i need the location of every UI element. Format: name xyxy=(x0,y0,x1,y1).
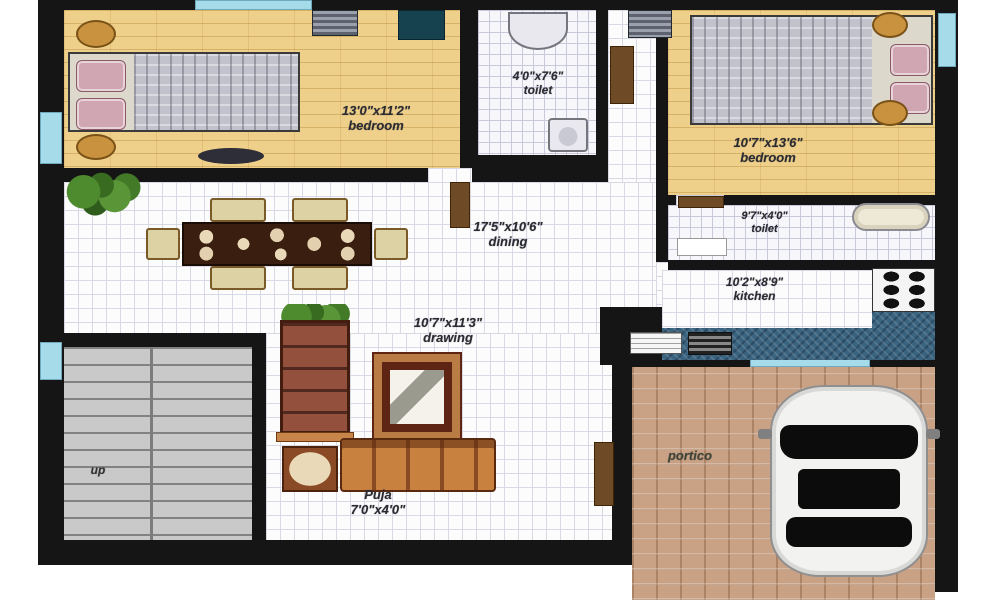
room-dims: 10'2"x8'9" xyxy=(682,276,827,290)
bookshelf xyxy=(280,320,350,434)
staircase-rail xyxy=(150,347,153,540)
kitchen-sink xyxy=(630,332,682,354)
room-name: toilet xyxy=(482,84,594,98)
room-dims: 7'0"x4'0" xyxy=(300,503,456,518)
sofa xyxy=(340,438,496,492)
dining-chair xyxy=(210,198,266,222)
toilet-seat xyxy=(548,118,588,152)
kitchen-appliance xyxy=(688,332,732,355)
gas-stove xyxy=(872,268,935,312)
room-name: portico xyxy=(632,449,748,464)
dining-chair xyxy=(292,266,348,290)
portico-label: portico xyxy=(632,449,748,464)
room-dims: 10'7"x13'6" xyxy=(688,136,848,151)
bed-blanket xyxy=(134,54,298,130)
plant xyxy=(64,172,142,216)
room-name: drawing xyxy=(368,331,528,346)
wardrobe xyxy=(398,10,445,40)
toilet-top-door xyxy=(610,46,634,104)
nightstand xyxy=(872,100,908,126)
bedroom-top-left-label: 13'0"x11'2" bedroom xyxy=(292,104,460,134)
window-left-bedroom xyxy=(40,112,62,164)
pillow xyxy=(76,60,126,92)
car-mirror xyxy=(926,429,940,439)
car-sunroof xyxy=(798,469,900,509)
room-name: bedroom xyxy=(292,119,460,134)
puja-label: Puja 7'0"x4'0" xyxy=(300,488,456,518)
car-mirror xyxy=(758,429,772,439)
window-left-stairs xyxy=(40,342,62,380)
pillow xyxy=(76,98,126,130)
room-name: kitchen xyxy=(682,290,827,304)
toilet-right-door xyxy=(678,196,724,208)
tv-unit xyxy=(372,352,462,442)
room-dims: 10'7"x11'3" xyxy=(368,316,528,331)
bed-blanket xyxy=(692,17,872,123)
floor-plan: 13'0"x11'2" bedroom 4'0"x7'6" toilet 10'… xyxy=(0,0,1000,600)
bathtub xyxy=(852,203,930,231)
drawing-label: 10'7"x11'3" drawing xyxy=(368,316,528,346)
nightstand xyxy=(76,134,116,160)
pillow xyxy=(890,44,930,76)
nightstand xyxy=(76,20,116,48)
dining-chair xyxy=(374,228,408,260)
right-wall-extension xyxy=(935,565,958,592)
room-dims: 9'7"x4'0" xyxy=(692,210,837,223)
room-dims: 13'0"x11'2" xyxy=(292,104,460,119)
dresser xyxy=(628,10,672,38)
main-entrance-door xyxy=(594,442,614,506)
dining-table xyxy=(182,222,372,266)
car xyxy=(770,385,928,577)
bedside-rug xyxy=(198,148,264,164)
room-name: bedroom xyxy=(688,151,848,166)
nightstand xyxy=(872,12,908,38)
staircase-up-label: up xyxy=(80,464,116,478)
window-right-bedroom xyxy=(938,13,956,67)
dining-chair xyxy=(210,266,266,290)
car-rear-window xyxy=(786,517,912,547)
room-name: up xyxy=(80,464,116,478)
toilet-right-label: 9'7"x4'0" toilet xyxy=(692,210,837,235)
dresser xyxy=(312,10,358,36)
window-top xyxy=(195,0,312,10)
dining-chair xyxy=(146,228,180,260)
car-windshield xyxy=(780,425,918,459)
dining-label: 17'5"x10'6" dining xyxy=(428,220,588,250)
tv-screen xyxy=(390,370,444,424)
room-dims: 4'0"x7'6" xyxy=(482,70,594,84)
shower-tray xyxy=(677,238,727,256)
coffee-table xyxy=(282,446,338,492)
room-dims: 17'5"x10'6" xyxy=(428,220,588,235)
room-name: toilet xyxy=(692,223,837,236)
room-name: Puja xyxy=(300,488,456,503)
kitchen-label: 10'2"x8'9" kitchen xyxy=(682,276,827,304)
bedroom-door-opening xyxy=(428,168,472,182)
staircase xyxy=(64,347,252,540)
bedroom-top-right-label: 10'7"x13'6" bedroom xyxy=(688,136,848,166)
dining-chair xyxy=(292,198,348,222)
toilet-top-label: 4'0"x7'6" toilet xyxy=(482,70,594,98)
room-name: dining xyxy=(428,235,588,250)
